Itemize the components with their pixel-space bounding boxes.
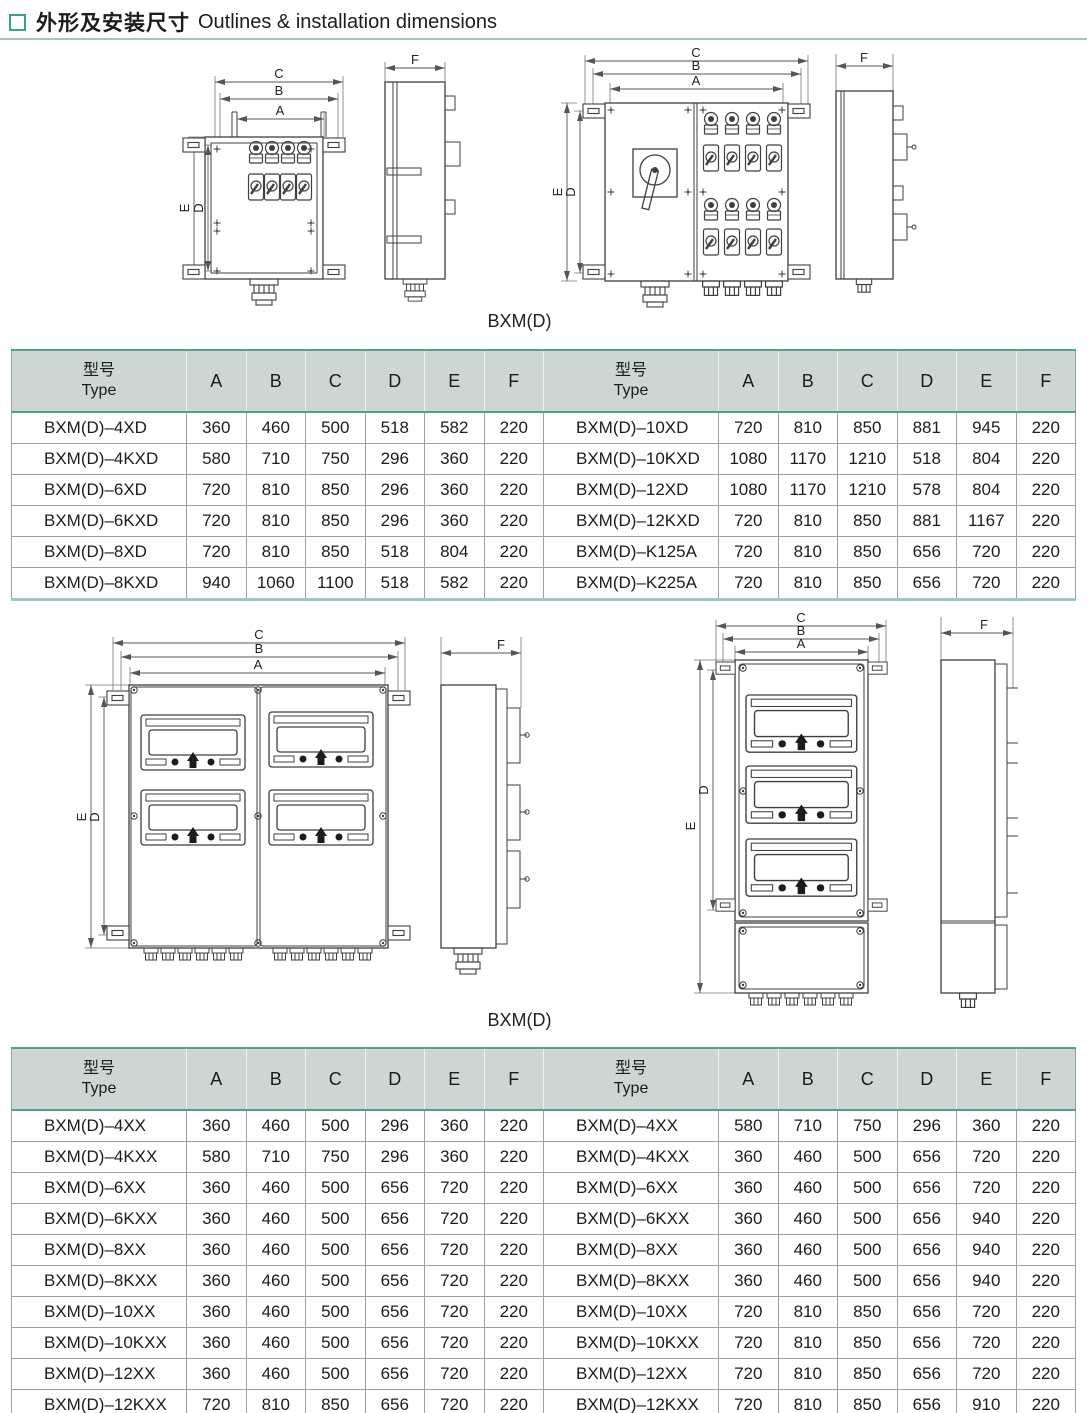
dim-label-e: E: [683, 821, 698, 830]
dim-cell: 1080: [719, 444, 779, 475]
type-cell: BXM(D)–4XX: [544, 1110, 719, 1142]
dim-cell: 720: [957, 1359, 1017, 1390]
dim-cell: 500: [306, 1110, 366, 1142]
type-cell: BXM(D)–12XD: [544, 475, 719, 506]
col-header-d: D: [897, 350, 957, 412]
col-header-f: F: [1016, 1048, 1076, 1110]
dim-cell: 500: [306, 1204, 366, 1235]
dim-cell: 220: [484, 506, 544, 537]
col-header-e: E: [425, 350, 485, 412]
dim-label-f: F: [497, 637, 505, 652]
dim-cell: 804: [957, 475, 1017, 506]
dim-label-d: D: [696, 785, 711, 794]
dim-cell: 220: [1016, 412, 1076, 444]
type-cell: BXM(D)–12KXD: [544, 506, 719, 537]
dim-cell: 656: [897, 1390, 957, 1413]
dim-cell: 578: [897, 475, 957, 506]
type-cell: BXM(D)–12KXX: [544, 1390, 719, 1413]
dim-cell: 656: [365, 1266, 425, 1297]
dim-cell: 500: [838, 1142, 898, 1173]
dim-cell: 500: [306, 1297, 366, 1328]
col-header-type-en: Type: [82, 1080, 117, 1097]
dim-cell: 220: [484, 537, 544, 568]
dim-cell: 360: [425, 1110, 485, 1142]
dim-cell: 720: [719, 568, 779, 600]
dim-cell: 580: [719, 1110, 779, 1142]
type-cell: BXM(D)–8KXX: [544, 1266, 719, 1297]
table-row: BXM(D)–8XX360460500656720220BXM(D)–8XX36…: [12, 1235, 1076, 1266]
dim-cell: 220: [1016, 1390, 1076, 1413]
dim-cell: 460: [778, 1173, 838, 1204]
dim-cell: 518: [365, 412, 425, 444]
dim-cell: 720: [425, 1328, 485, 1359]
dim-cell: 720: [719, 1297, 779, 1328]
dim-cell: 804: [957, 444, 1017, 475]
type-cell: BXM(D)–6KXD: [12, 506, 187, 537]
dim-cell: 360: [187, 1235, 247, 1266]
dim-cell: 850: [838, 1328, 898, 1359]
table-row: BXM(D)–4KXX580710750296360220BXM(D)–4KXX…: [12, 1142, 1076, 1173]
dim-cell: 360: [187, 1266, 247, 1297]
col-header-type: 型号 Type: [12, 350, 187, 412]
dim-cell: 720: [957, 1328, 1017, 1359]
col-header-e: E: [957, 1048, 1017, 1110]
dim-cell: 360: [187, 1297, 247, 1328]
dim-label-f: F: [860, 50, 868, 65]
dim-cell: 518: [897, 444, 957, 475]
dim-cell: 220: [1016, 1266, 1076, 1297]
dim-cell: 220: [1016, 506, 1076, 537]
dim-cell: 940: [957, 1204, 1017, 1235]
figure-small-box-front-side-view: C B A E D F: [180, 52, 470, 320]
dim-cell: 720: [425, 1390, 485, 1413]
dim-cell: 460: [246, 1110, 306, 1142]
type-cell: BXM(D)–K125A: [544, 537, 719, 568]
dim-cell: 460: [778, 1142, 838, 1173]
dim-cell: 220: [1016, 475, 1076, 506]
dim-cell: 940: [957, 1266, 1017, 1297]
col-header-type: 型号 Type: [544, 1048, 719, 1110]
dim-cell: 750: [306, 1142, 366, 1173]
dim-cell: 460: [246, 1297, 306, 1328]
col-header-f: F: [484, 350, 544, 412]
divider-rule: [0, 38, 1087, 40]
dim-cell: 460: [246, 1235, 306, 1266]
dim-cell: 360: [425, 444, 485, 475]
dim-cell: 220: [484, 1359, 544, 1390]
dim-cell: 460: [778, 1204, 838, 1235]
figure-caption: BXM(D): [432, 311, 607, 332]
type-cell: BXM(D)–12XX: [544, 1359, 719, 1390]
table-header-row: 型号 Type A B C D E F 型号 Type A B C: [12, 350, 1076, 412]
type-cell: BXM(D)–4KXD: [12, 444, 187, 475]
table-row: BXM(D)–6KXX360460500656720220BXM(D)–6KXX…: [12, 1204, 1076, 1235]
dimensions-table-2: 型号 Type A B C D E F 型号 Type A B C: [11, 1047, 1076, 1413]
dim-cell: 460: [246, 412, 306, 444]
col-header-type-en: Type: [614, 382, 649, 399]
type-cell: BXM(D)–10KXD: [544, 444, 719, 475]
table-row: BXM(D)–8KXX360460500656720220BXM(D)–8KXX…: [12, 1266, 1076, 1297]
col-header-a: A: [719, 1048, 779, 1110]
type-cell: BXM(D)–10XX: [544, 1297, 719, 1328]
dim-cell: 656: [897, 1266, 957, 1297]
type-cell: BXM(D)–6XX: [544, 1173, 719, 1204]
dim-cell: 296: [897, 1110, 957, 1142]
col-header-b: B: [246, 1048, 306, 1110]
dim-cell: 656: [897, 1328, 957, 1359]
dim-cell: 656: [365, 1328, 425, 1359]
col-header-b: B: [246, 350, 306, 412]
col-header-type-zh: 型号: [83, 1060, 115, 1077]
dim-cell: 582: [425, 412, 485, 444]
dim-label-a: A: [797, 636, 806, 651]
dim-cell: 360: [425, 475, 485, 506]
dim-cell: 810: [778, 568, 838, 600]
dim-cell: 220: [484, 1173, 544, 1204]
col-header-d: D: [365, 350, 425, 412]
dim-cell: 500: [838, 1266, 898, 1297]
dim-cell: 460: [778, 1235, 838, 1266]
dim-cell: 720: [425, 1204, 485, 1235]
dim-cell: 881: [897, 412, 957, 444]
dim-cell: 220: [1016, 1297, 1076, 1328]
dim-cell: 582: [425, 568, 485, 600]
dim-cell: 500: [306, 1235, 366, 1266]
type-cell: BXM(D)–12XX: [12, 1359, 187, 1390]
col-header-a: A: [719, 350, 779, 412]
type-cell: BXM(D)–4KXX: [12, 1142, 187, 1173]
dim-cell: 656: [897, 1204, 957, 1235]
dim-cell: 720: [719, 537, 779, 568]
dim-cell: 656: [365, 1204, 425, 1235]
dim-cell: 656: [897, 1359, 957, 1390]
dim-cell: 220: [484, 568, 544, 600]
dim-cell: 656: [365, 1359, 425, 1390]
col-header-d: D: [365, 1048, 425, 1110]
dim-cell: 720: [187, 1390, 247, 1413]
dim-cell: 500: [838, 1204, 898, 1235]
dim-label-a: A: [276, 103, 285, 118]
dim-cell: 1170: [778, 475, 838, 506]
table-row: BXM(D)–6XX360460500656720220BXM(D)–6XX36…: [12, 1173, 1076, 1204]
type-cell: BXM(D)–10XX: [12, 1297, 187, 1328]
dim-cell: 220: [1016, 1328, 1076, 1359]
dim-cell: 220: [1016, 1359, 1076, 1390]
dim-cell: 720: [957, 568, 1017, 600]
dim-cell: 945: [957, 412, 1017, 444]
dim-cell: 360: [425, 506, 485, 537]
dim-cell: 220: [1016, 1204, 1076, 1235]
dim-cell: 220: [1016, 1110, 1076, 1142]
dim-cell: 360: [719, 1173, 779, 1204]
type-cell: BXM(D)–8XD: [12, 537, 187, 568]
type-cell: BXM(D)–6KXX: [544, 1204, 719, 1235]
dim-cell: 810: [778, 1297, 838, 1328]
dim-cell: 500: [306, 1266, 366, 1297]
dim-cell: 720: [425, 1359, 485, 1390]
dim-cell: 656: [365, 1297, 425, 1328]
dim-label-f: F: [411, 52, 419, 67]
dim-cell: 220: [484, 412, 544, 444]
table-header-row: 型号 Type A B C D E F 型号 Type A B C: [12, 1048, 1076, 1110]
dim-cell: 580: [187, 1142, 247, 1173]
dim-cell: 220: [484, 1266, 544, 1297]
dim-cell: 710: [246, 1142, 306, 1173]
page: 外形及安装尺寸 Outlines & installation dimensio…: [0, 0, 1087, 1413]
dim-cell: 220: [484, 475, 544, 506]
dim-cell: 810: [778, 1359, 838, 1390]
dim-cell: 850: [838, 537, 898, 568]
dim-cell: 720: [957, 537, 1017, 568]
dim-cell: 500: [306, 1328, 366, 1359]
dim-cell: 220: [1016, 444, 1076, 475]
col-header-e: E: [425, 1048, 485, 1110]
dim-cell: 360: [187, 1110, 247, 1142]
dim-cell: 720: [425, 1235, 485, 1266]
dim-cell: 881: [897, 506, 957, 537]
table-row: BXM(D)–10XX360460500656720220BXM(D)–10XX…: [12, 1297, 1076, 1328]
dim-cell: 360: [719, 1266, 779, 1297]
table-row: BXM(D)–12XX360460500656720220BXM(D)–12XX…: [12, 1359, 1076, 1390]
type-cell: BXM(D)–8KXD: [12, 568, 187, 600]
dim-cell: 850: [306, 475, 366, 506]
dim-cell: 296: [365, 506, 425, 537]
dim-cell: 810: [246, 1390, 306, 1413]
dim-cell: 460: [246, 1173, 306, 1204]
dim-label-f: F: [980, 617, 988, 632]
dim-cell: 360: [957, 1110, 1017, 1142]
dim-cell: 360: [187, 1173, 247, 1204]
dim-cell: 656: [897, 1297, 957, 1328]
table-row: BXM(D)–4XD360460500518582220BXM(D)–10XD7…: [12, 412, 1076, 444]
dim-cell: 518: [365, 537, 425, 568]
figure-caption: BXM(D): [432, 1010, 607, 1031]
dim-cell: 656: [365, 1390, 425, 1413]
dim-cell: 220: [484, 1142, 544, 1173]
type-cell: BXM(D)–K225A: [544, 568, 719, 600]
type-cell: BXM(D)–8XX: [544, 1235, 719, 1266]
dim-cell: 518: [365, 568, 425, 600]
col-header-d: D: [897, 1048, 957, 1110]
table-row: BXM(D)–6KXD720810850296360220BXM(D)–12KX…: [12, 506, 1076, 537]
dim-label-d: D: [87, 812, 102, 821]
col-header-e: E: [957, 350, 1017, 412]
col-header-f: F: [1016, 350, 1076, 412]
dim-cell: 500: [838, 1235, 898, 1266]
figure-wide-box-front-side-view: C B A E D F: [553, 46, 928, 336]
dim-cell: 804: [425, 537, 485, 568]
table-row: BXM(D)–8XD720810850518804220BXM(D)–K125A…: [12, 537, 1076, 568]
col-header-c: C: [838, 350, 898, 412]
dim-cell: 810: [246, 475, 306, 506]
dim-cell: 720: [425, 1173, 485, 1204]
dim-label-d: D: [191, 203, 206, 212]
col-header-c: C: [306, 1048, 366, 1110]
col-header-c: C: [306, 350, 366, 412]
dim-cell: 850: [306, 537, 366, 568]
table-row: BXM(D)–4XX360460500296360220BXM(D)–4XX58…: [12, 1110, 1076, 1142]
type-cell: BXM(D)–10XD: [544, 412, 719, 444]
dim-label-a: A: [254, 657, 263, 672]
dim-cell: 500: [306, 1173, 366, 1204]
table-row: BXM(D)–6XD720810850296360220BXM(D)–12XD1…: [12, 475, 1076, 506]
col-header-type-en: Type: [614, 1080, 649, 1097]
dim-cell: 220: [484, 1204, 544, 1235]
dim-cell: 460: [246, 1328, 306, 1359]
dim-cell: 220: [1016, 568, 1076, 600]
dim-cell: 850: [306, 1390, 366, 1413]
dim-cell: 500: [838, 1173, 898, 1204]
dim-cell: 850: [838, 506, 898, 537]
dim-cell: 656: [897, 1173, 957, 1204]
dim-cell: 500: [306, 412, 366, 444]
dim-cell: 720: [719, 506, 779, 537]
figure-tall-box-front-side-view: C B A E D F: [668, 603, 1018, 1028]
dim-cell: 720: [425, 1297, 485, 1328]
dim-cell: 710: [246, 444, 306, 475]
col-header-type-zh: 型号: [615, 1060, 647, 1077]
dim-cell: 360: [719, 1235, 779, 1266]
dim-cell: 220: [1016, 1173, 1076, 1204]
dimensions-table-1-wrap: 型号 Type A B C D E F 型号 Type A B C: [11, 349, 1076, 601]
dim-cell: 1167: [957, 506, 1017, 537]
dim-cell: 720: [187, 475, 247, 506]
dim-cell: 220: [484, 1110, 544, 1142]
type-cell: BXM(D)–6XX: [12, 1173, 187, 1204]
dim-cell: 850: [838, 1359, 898, 1390]
col-header-type-zh: 型号: [83, 362, 115, 379]
dim-cell: 360: [719, 1204, 779, 1235]
dim-cell: 720: [187, 506, 247, 537]
dim-cell: 810: [778, 1328, 838, 1359]
col-header-type-zh: 型号: [615, 362, 647, 379]
col-header-type: 型号 Type: [12, 1048, 187, 1110]
dim-cell: 720: [425, 1266, 485, 1297]
dim-cell: 850: [306, 506, 366, 537]
dim-cell: 360: [425, 1142, 485, 1173]
col-header-a: A: [187, 1048, 247, 1110]
dim-cell: 656: [897, 1235, 957, 1266]
dim-cell: 580: [187, 444, 247, 475]
table-row: BXM(D)–4KXD580710750296360220BXM(D)–10KX…: [12, 444, 1076, 475]
type-cell: BXM(D)–6KXX: [12, 1204, 187, 1235]
dim-cell: 720: [719, 1359, 779, 1390]
dim-cell: 1210: [838, 444, 898, 475]
dim-cell: 940: [957, 1235, 1017, 1266]
dimensions-table-2-wrap: 型号 Type A B C D E F 型号 Type A B C: [11, 1047, 1076, 1413]
dim-cell: 940: [187, 568, 247, 600]
dim-label-c: C: [274, 66, 283, 81]
dim-cell: 720: [957, 1173, 1017, 1204]
dim-cell: 460: [778, 1266, 838, 1297]
dim-cell: 460: [246, 1204, 306, 1235]
table-row: BXM(D)–12KXX720810850656720220BXM(D)–12K…: [12, 1390, 1076, 1413]
dim-cell: 360: [187, 1359, 247, 1390]
dimensions-table-1: 型号 Type A B C D E F 型号 Type A B C: [11, 349, 1076, 601]
dim-cell: 1080: [719, 475, 779, 506]
type-cell: BXM(D)–10KXX: [544, 1328, 719, 1359]
dim-cell: 656: [365, 1173, 425, 1204]
type-cell: BXM(D)–10KXX: [12, 1328, 187, 1359]
dim-cell: 296: [365, 1142, 425, 1173]
dim-cell: 720: [719, 1390, 779, 1413]
dim-cell: 850: [838, 412, 898, 444]
dim-label-b: B: [275, 83, 284, 98]
dim-label-b: B: [692, 58, 701, 73]
dim-label-a: A: [692, 73, 701, 88]
type-cell: BXM(D)–4KXX: [544, 1142, 719, 1173]
dim-label-b: B: [255, 641, 264, 656]
dim-cell: 460: [246, 1266, 306, 1297]
col-header-type: 型号 Type: [544, 350, 719, 412]
dim-cell: 296: [365, 444, 425, 475]
dim-cell: 360: [187, 412, 247, 444]
dim-cell: 810: [246, 506, 306, 537]
dim-cell: 1100: [306, 568, 366, 600]
dim-cell: 656: [897, 1142, 957, 1173]
table-row: BXM(D)–8KXD94010601100518582220BXM(D)–K2…: [12, 568, 1076, 600]
type-cell: BXM(D)–8KXX: [12, 1266, 187, 1297]
dim-cell: 810: [246, 537, 306, 568]
dim-cell: 360: [187, 1328, 247, 1359]
col-header-f: F: [484, 1048, 544, 1110]
dim-cell: 656: [897, 568, 957, 600]
dim-cell: 220: [484, 1328, 544, 1359]
col-header-b: B: [778, 350, 838, 412]
dim-label-d: D: [563, 187, 578, 196]
dim-cell: 220: [1016, 1235, 1076, 1266]
dim-cell: 220: [484, 1235, 544, 1266]
dim-cell: 810: [778, 506, 838, 537]
dim-cell: 220: [1016, 1142, 1076, 1173]
dim-cell: 220: [1016, 537, 1076, 568]
dim-cell: 500: [306, 1359, 366, 1390]
section-marker-icon: [9, 14, 26, 31]
dim-cell: 656: [897, 537, 957, 568]
dim-cell: 720: [957, 1297, 1017, 1328]
dim-cell: 720: [957, 1142, 1017, 1173]
dim-cell: 1210: [838, 475, 898, 506]
dim-cell: 460: [246, 1359, 306, 1390]
col-header-type-en: Type: [82, 382, 117, 399]
figure-two-door-box-front-side-view: C B A E D F: [73, 623, 538, 1023]
dim-cell: 810: [778, 1390, 838, 1413]
dim-cell: 220: [484, 1390, 544, 1413]
dim-cell: 720: [719, 1328, 779, 1359]
page-header: 外形及安装尺寸 Outlines & installation dimensio…: [9, 7, 497, 37]
page-title-en: Outlines & installation dimensions: [198, 11, 497, 34]
table-row: BXM(D)–10KXX360460500656720220BXM(D)–10K…: [12, 1328, 1076, 1359]
dim-cell: 810: [778, 412, 838, 444]
page-title-zh: 外形及安装尺寸: [36, 7, 190, 37]
col-header-a: A: [187, 350, 247, 412]
dim-cell: 850: [838, 1297, 898, 1328]
dim-cell: 1060: [246, 568, 306, 600]
dim-cell: 296: [365, 1110, 425, 1142]
col-header-c: C: [838, 1048, 898, 1110]
dim-cell: 360: [719, 1142, 779, 1173]
dim-cell: 710: [778, 1110, 838, 1142]
dim-cell: 750: [838, 1110, 898, 1142]
dim-cell: 850: [838, 1390, 898, 1413]
type-cell: BXM(D)–12KXX: [12, 1390, 187, 1413]
dim-cell: 296: [365, 475, 425, 506]
col-header-b: B: [778, 1048, 838, 1110]
dim-cell: 720: [719, 412, 779, 444]
dim-cell: 810: [778, 537, 838, 568]
type-cell: BXM(D)–6XD: [12, 475, 187, 506]
dim-cell: 656: [365, 1235, 425, 1266]
